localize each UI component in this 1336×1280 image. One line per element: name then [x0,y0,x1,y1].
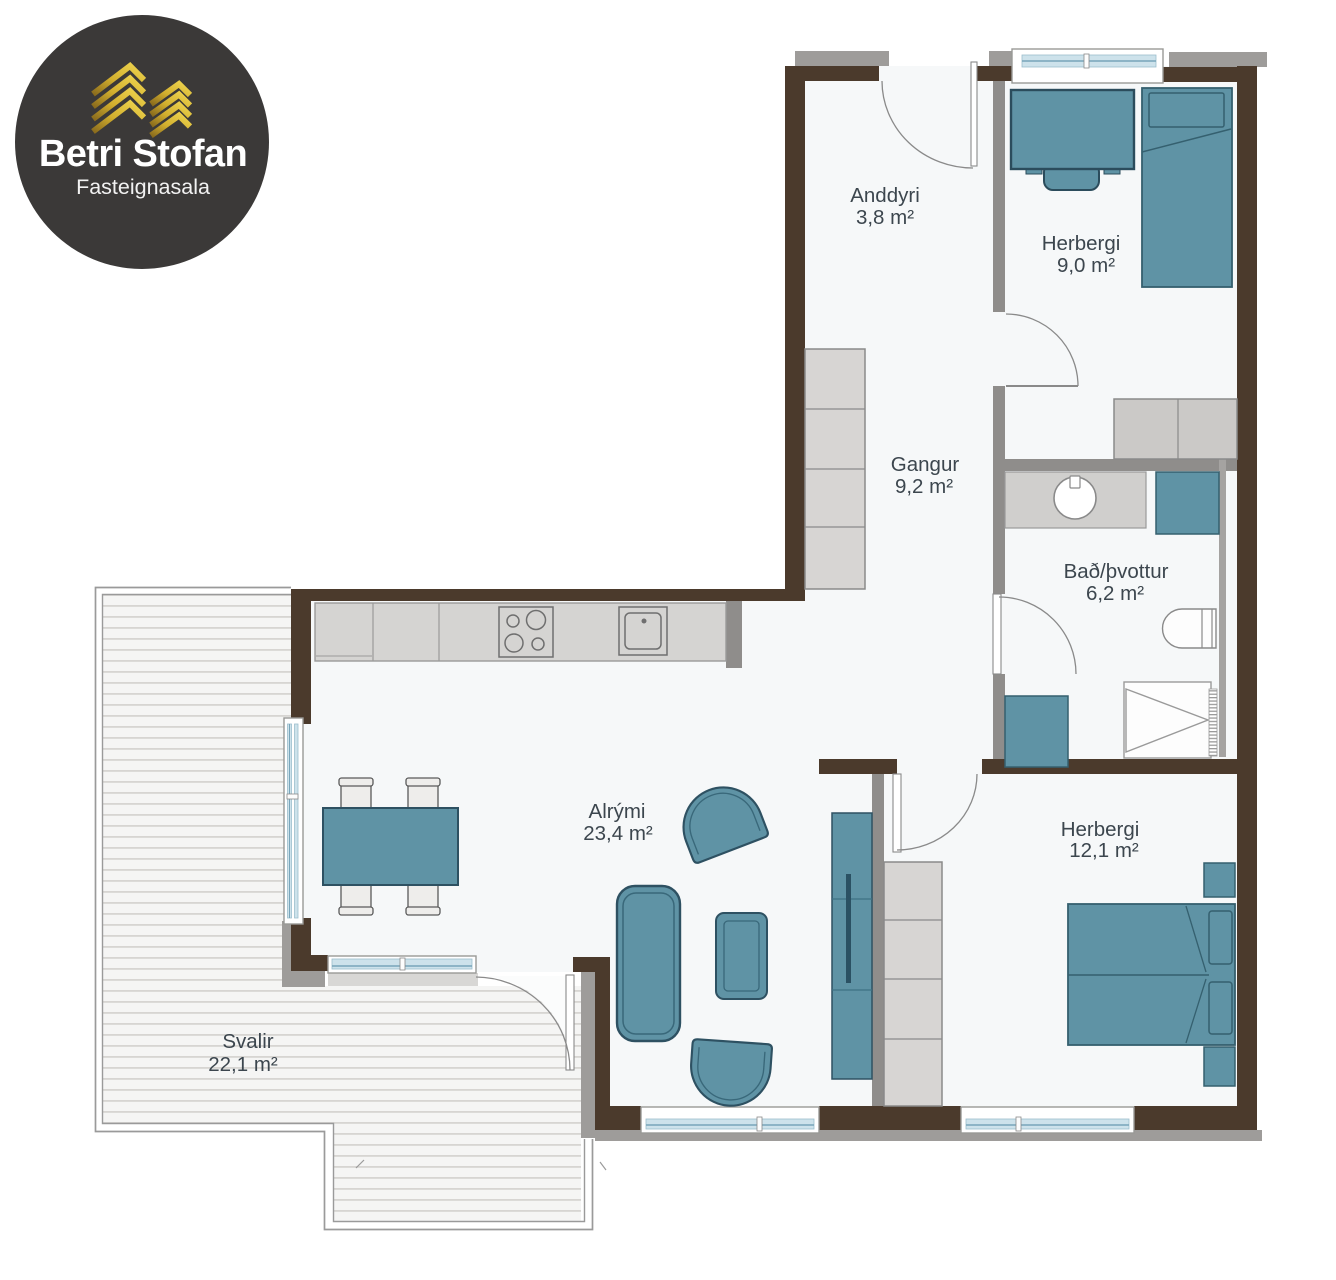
svg-text:Herbergi: Herbergi [1061,818,1140,841]
svg-text:Fasteignasala: Fasteignasala [76,175,210,199]
svg-text:Betri Stofan: Betri Stofan [39,133,247,175]
svg-text:Alrými: Alrými [589,800,646,823]
svg-text:22,1 m²: 22,1 m² [208,1053,278,1076]
svg-text:9,0 m²: 9,0 m² [1057,254,1115,277]
svg-text:6,2 m²: 6,2 m² [1086,582,1144,605]
svg-text:Anddyri: Anddyri [850,184,920,207]
svg-text:Svalir: Svalir [222,1030,273,1053]
svg-text:3,8 m²: 3,8 m² [856,206,914,229]
svg-text:Gangur: Gangur [891,453,960,476]
svg-text:23,4 m²: 23,4 m² [583,822,653,845]
svg-text:12,1 m²: 12,1 m² [1069,839,1139,862]
svg-text:9,2 m²: 9,2 m² [895,475,953,498]
svg-text:Bað/þvottur: Bað/þvottur [1064,560,1169,583]
svg-text:Herbergi: Herbergi [1042,232,1121,255]
